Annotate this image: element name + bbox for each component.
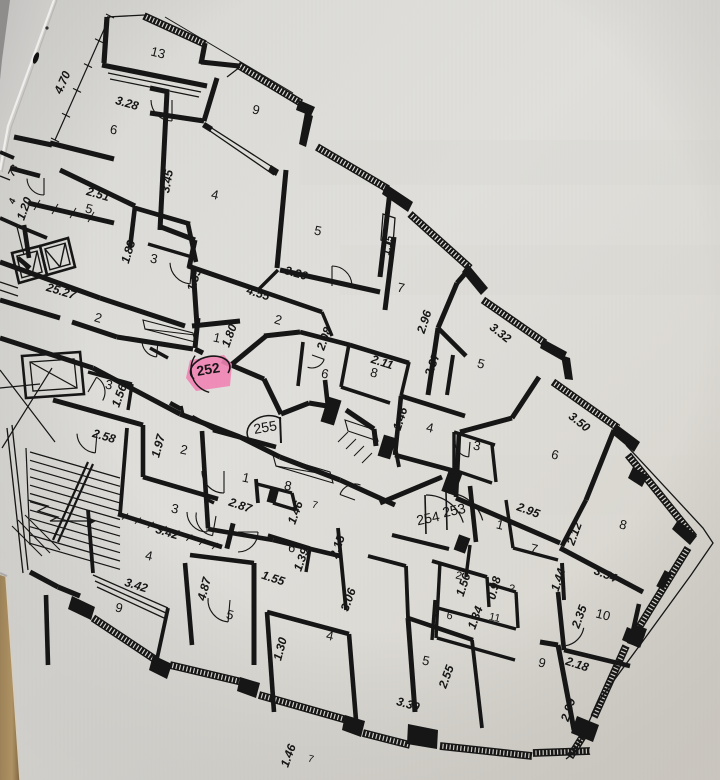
svg-text:11: 11 xyxy=(488,611,502,625)
